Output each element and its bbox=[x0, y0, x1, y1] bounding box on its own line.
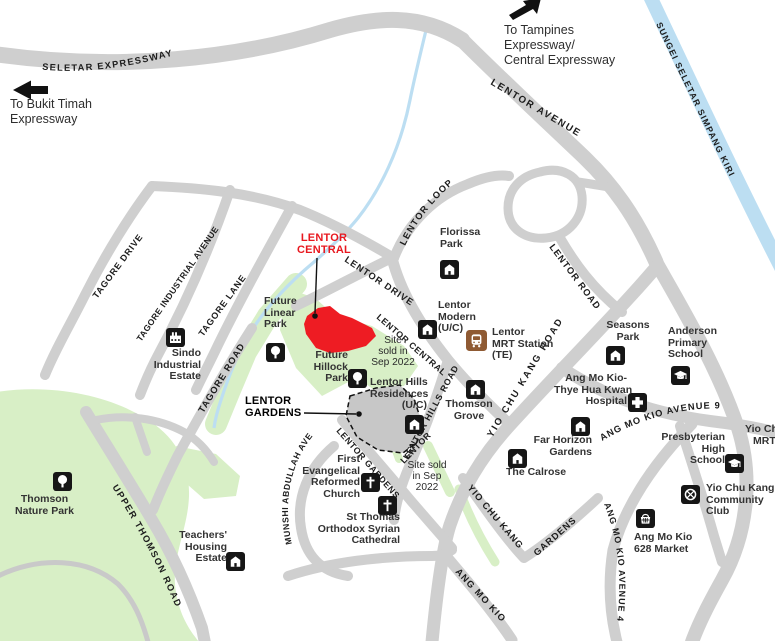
school-icon bbox=[671, 366, 690, 385]
road-label-yck-gardens-2: GARDENS bbox=[532, 515, 579, 558]
note-to-tampines: To Tampines Expressway/ Central Expressw… bbox=[504, 23, 615, 68]
label-site-sold-1: Site sold in Sep 2022 bbox=[362, 336, 424, 368]
label-seasons-park: Seasons Park bbox=[601, 320, 655, 343]
label-far-horizon-gardens: Far Horizon Gardens bbox=[527, 435, 592, 458]
label-teachers-housing-estate: Teachers' Housing Estate bbox=[170, 530, 227, 565]
label-st-thomas-cathedral: St Thomas Orthodox Syrian Cathedral bbox=[308, 512, 400, 547]
label-first-evangelical-church: First Evangelical Reformed Church bbox=[297, 454, 360, 500]
site-marker-dot bbox=[312, 313, 318, 319]
label-lentor-modern: Lentor Modern (U/C) bbox=[438, 300, 476, 335]
condo-icon bbox=[405, 415, 424, 434]
label-thomson-grove: Thomson Grove bbox=[441, 399, 497, 422]
park-tree-icon bbox=[53, 472, 72, 491]
school-icon bbox=[725, 454, 744, 473]
park-tree-icon bbox=[266, 343, 285, 362]
label-lentor-central-site: LENTOR CENTRAL bbox=[293, 233, 355, 256]
label-anderson-primary: Anderson Primary School bbox=[668, 326, 717, 361]
market-icon bbox=[636, 509, 655, 528]
condo-icon bbox=[226, 552, 245, 571]
label-lentor-hills-residences: Lentor Hills Residences (U/C) bbox=[370, 377, 427, 412]
road-label-amk-partial: ANG MO KIO bbox=[454, 567, 509, 625]
road-lentor-avenue bbox=[462, 40, 656, 262]
label-amk-thk-hospital: Ang Mo Kio- Thye Hua Kwan Hospital bbox=[554, 373, 627, 408]
label-site-sold-2: Site sold in Sep 2022 bbox=[402, 461, 452, 493]
label-amk-628-market: Ang Mo Kio 628 Market bbox=[634, 532, 692, 555]
community-club-icon bbox=[681, 485, 700, 504]
arrow-northeast-icon bbox=[509, 0, 541, 20]
road-loop-stub bbox=[578, 182, 614, 188]
condo-icon bbox=[606, 346, 625, 365]
site-marker-dot bbox=[356, 411, 362, 417]
map-canvas: SELETAR EXPRESSWAY LENTOR AVENUE SUNGEI … bbox=[0, 0, 775, 641]
label-lentor-mrt-station: Lentor MRT Station (TE) bbox=[492, 327, 553, 362]
label-thomson-nature-park: Thomson Nature Park bbox=[8, 494, 81, 517]
label-florissa-park: Florissa Park bbox=[440, 227, 480, 250]
label-yck-community-club: Yio Chu Kang Community Club bbox=[706, 483, 774, 518]
label-lentor-gardens-site: LENTOR GARDENS bbox=[245, 396, 301, 419]
label-sindo-industrial-estate: Sindo Industrial Estate bbox=[133, 348, 201, 383]
label-presbyterian-high: Presbyterian High School bbox=[652, 432, 725, 467]
label-future-hillock-park: Future Hillock Park bbox=[301, 350, 348, 385]
label-yck-mrt-edge: Yio Chu Kang MRT Station bbox=[745, 424, 775, 447]
condo-icon bbox=[440, 260, 459, 279]
leader-lentor-gardens bbox=[304, 413, 356, 414]
road-label-lentor-avenue: LENTOR AVENUE bbox=[488, 77, 583, 139]
condo-icon bbox=[466, 380, 485, 399]
factory-icon bbox=[166, 328, 185, 347]
label-future-linear-park: Future Linear Park bbox=[264, 296, 297, 331]
water-label-sungei-seletar: SUNGEI SELETAR SIMPANG KIRI bbox=[654, 21, 737, 179]
road-tagore-drive bbox=[45, 186, 152, 375]
park-tree-icon bbox=[348, 369, 367, 388]
road-lentor-loop-teardrop bbox=[508, 170, 582, 238]
label-the-calrose: The Calrose bbox=[506, 467, 566, 479]
road-label-lentor-road: LENTOR ROAD bbox=[547, 242, 602, 311]
church-icon bbox=[361, 473, 380, 492]
road-seletar-expressway bbox=[0, 20, 462, 62]
note-to-bukit-timah: To Bukit Timah Expressway bbox=[10, 97, 92, 127]
